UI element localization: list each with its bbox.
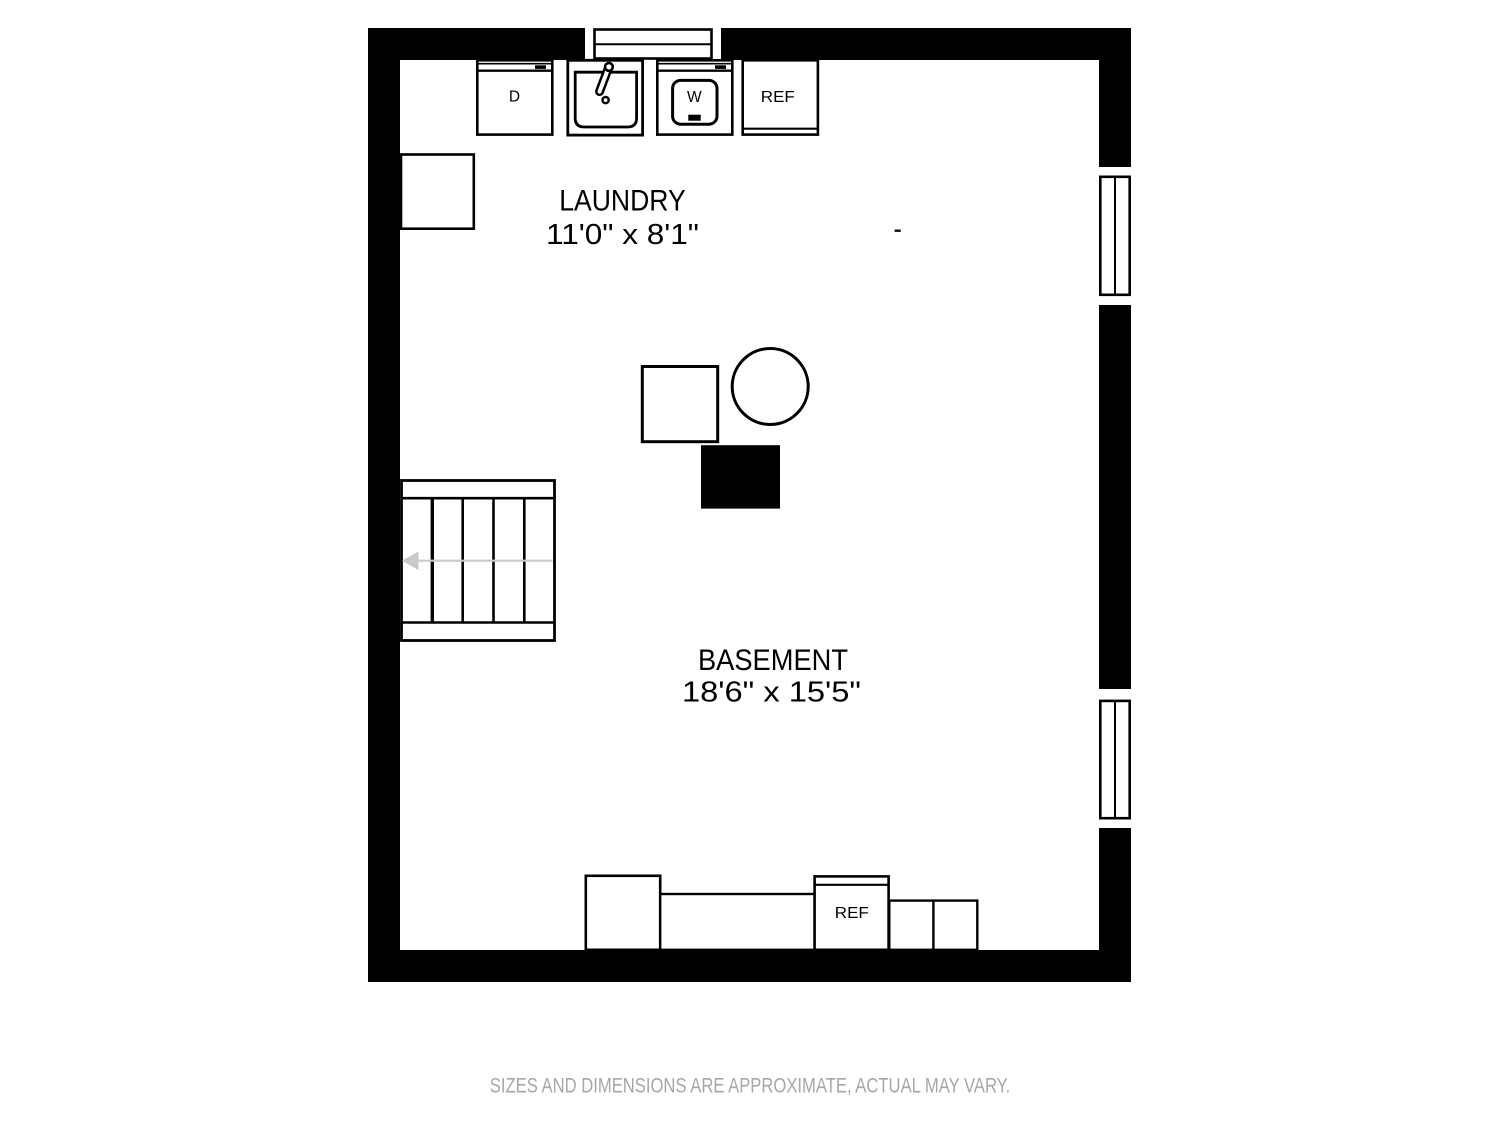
svg-text:18'6" x 15'5": 18'6" x 15'5" <box>682 677 861 709</box>
svg-text:D: D <box>509 89 520 106</box>
svg-text:REF: REF <box>835 905 869 922</box>
svg-text:SIZES AND DIMENSIONS ARE APPRO: SIZES AND DIMENSIONS ARE APPROXIMATE, AC… <box>490 1075 1011 1098</box>
svg-text:W: W <box>687 89 702 106</box>
svg-text:11'0" x 8'1": 11'0" x 8'1" <box>546 219 699 251</box>
svg-text:LAUNDRY: LAUNDRY <box>559 186 686 218</box>
svg-text:REF: REF <box>761 89 795 106</box>
svg-text:BASEMENT: BASEMENT <box>698 644 848 677</box>
